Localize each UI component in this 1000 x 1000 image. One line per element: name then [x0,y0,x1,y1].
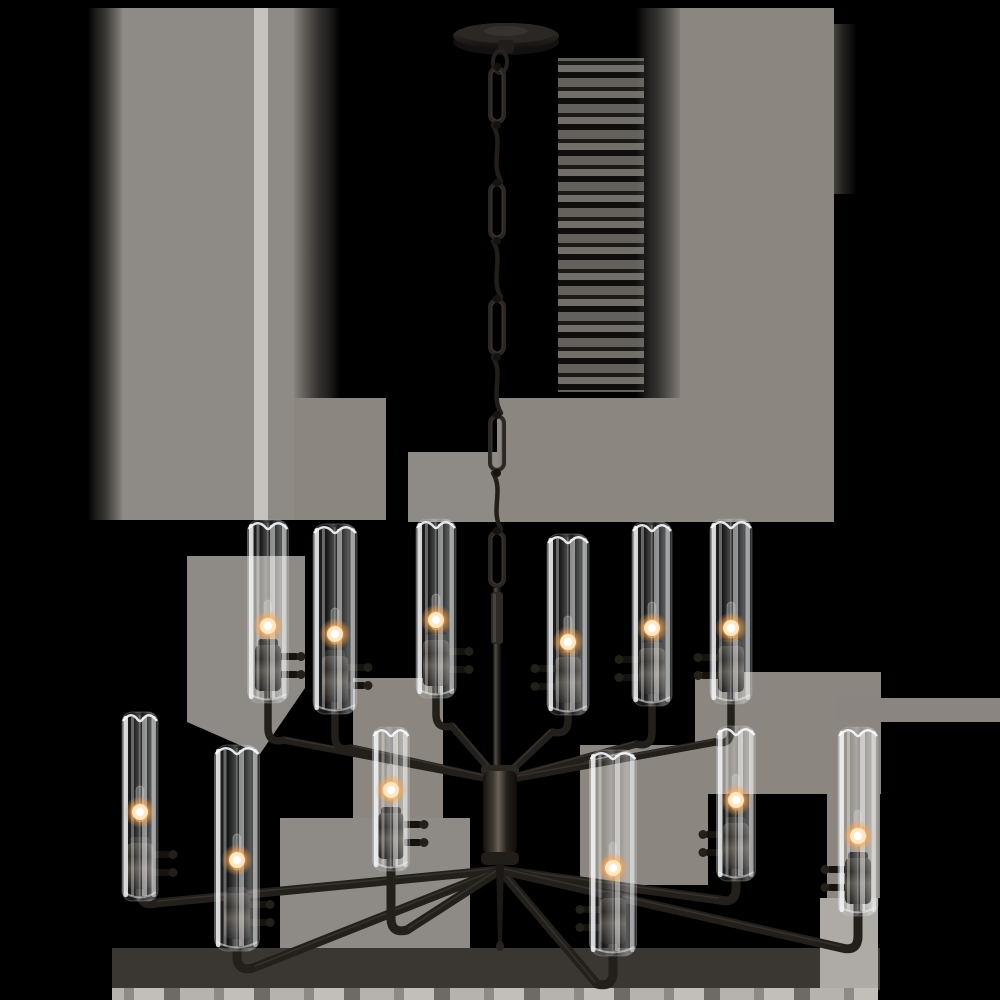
bulb-filament [564,638,572,646]
socket-screw-cap [531,682,540,691]
chain-knot [493,295,501,303]
chain-link-twisted [493,125,501,181]
chain-knot [493,411,501,419]
socket-screw-cap [297,670,306,679]
chandelier-photo: two-tier chandelier product photo [0,0,1000,1000]
halo-patch-chain-streaks [558,58,644,392]
socket-screw-cap [821,883,830,892]
halo-patch-bottom-dark-band [112,948,880,990]
chain-link-highlight [492,70,502,120]
halo-patch-left-ext [294,398,386,520]
stem-sleeve [491,592,503,644]
socket-screw-cap [364,681,373,690]
glass-edge-highlight-left [712,523,717,700]
chain-knot [493,179,501,187]
socket-screw-cap [297,652,306,661]
glass-edge-highlight-right [666,526,671,702]
glass-edge-highlight-left [418,523,423,694]
glass-edge-highlight-left [216,749,221,947]
socket-screw-cap [465,665,474,674]
glass-edge-highlight-left [315,528,320,710]
halo-patch-mid-right-band [497,398,682,522]
bulb-filament [648,624,656,632]
glass-streak [257,525,260,698]
socket-screw-cap [576,923,585,932]
glass-edge-highlight-right [630,754,635,952]
socket-screw-cap [576,905,585,914]
chain-knot [493,469,501,477]
glass-edge-highlight-right [872,731,877,912]
socket-screw-cap [420,820,429,829]
socket-screw-cap [266,918,275,927]
socket-screw-cap [694,653,703,662]
glass-streak [322,529,325,709]
halo-patch-left-block-2 [268,8,294,520]
bulb-filament [727,624,735,632]
chain-knot [493,353,501,361]
halo-patch-left-block [122,8,254,520]
chain-link-highlight [492,186,502,236]
bulb-filament [233,856,241,864]
chain-knot [493,121,501,129]
glass-edge-highlight-left [249,524,254,699]
socket-screw-cap [266,900,275,909]
bulb-filament [264,622,272,630]
socket-screw-cap [364,663,373,672]
bulb-filament [331,630,339,638]
glass-streak [641,527,644,701]
socket-screw-cap [169,868,178,877]
glass-edge-highlight-right [746,523,751,700]
glass-edge-highlight-left [591,754,596,952]
halo-patch-left-light-strip [254,8,268,520]
socket-screw-cap [465,647,474,656]
chain-knot [493,237,501,245]
bulb-filament [432,616,440,624]
socket-screw-cap [694,671,703,680]
glass-streak [556,539,559,710]
halo-patch-mid-left-band [408,452,498,522]
glass-streak [847,732,850,911]
bulb-filament [609,864,617,872]
socket-screw-cap [699,848,708,857]
hub-body [483,771,517,853]
socket-screw-cap [420,838,429,847]
glass-edge-highlight-right [253,749,258,947]
canopy-sheen [484,26,528,36]
glass-edge-highlight-left [634,526,639,702]
socket-screw-cap [615,655,624,664]
stem-sleeve-highlight [493,594,496,642]
glass-edge-highlight-right [450,523,455,694]
chain-link-highlight [492,302,502,352]
glass-edge-highlight-right [282,524,287,699]
glass-edge-highlight-right [351,528,356,710]
chain-knot [493,527,501,535]
chain-link-twisted [493,241,501,297]
glass-streak [224,750,227,946]
chain-link-twisted [493,357,501,413]
socket-screw-cap [699,830,708,839]
halo-patch-right-edge-fade [834,24,856,194]
finial-tip [496,941,504,951]
halo-patch-bottom-strip [112,988,878,1000]
halo-patch-left-fade [88,8,122,520]
socket-screw-cap [531,664,540,673]
glass-edge-highlight-right [583,538,588,711]
product-image: two-tier chandelier product photo [0,0,1000,1000]
bulb-filament [854,832,862,840]
halo-patch-right-block [680,8,834,522]
socket-screw-cap [169,850,178,859]
halo-patch-right-band-edge [836,698,1000,722]
glass-edge-highlight-left [840,731,845,912]
bulb-filament [732,796,740,804]
glass-edge-highlight-left [549,538,554,711]
chain-knot [493,63,501,71]
finial-rod [496,864,504,942]
glass-streak [599,755,602,951]
chain-link-highlight [492,534,502,584]
hub-bottom-lip [481,852,519,865]
socket-screw-cap [615,673,624,682]
socket-screw-cap [821,865,830,874]
bulb-filament [387,786,395,794]
glass-streak [719,524,722,699]
bulb-filament [136,808,144,816]
